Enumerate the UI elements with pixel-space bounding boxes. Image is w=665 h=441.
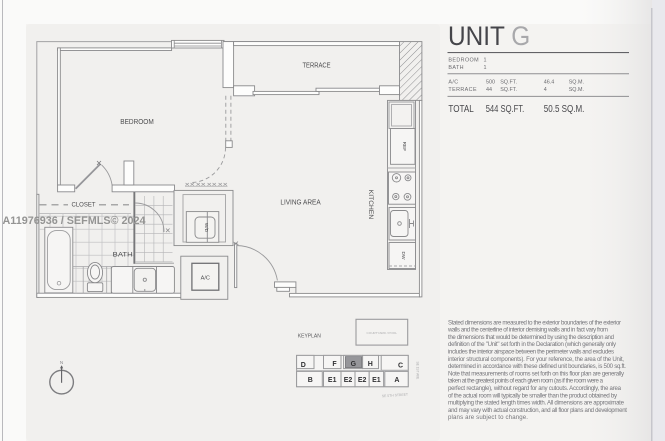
svg-text:Stated dimensions are measured: Stated dimensions are measured to the ex… — [448, 319, 621, 326]
svg-text:of the actual room will typica: of the actual room will typically be sma… — [448, 392, 618, 399]
svg-text:plans are subject to change.: plans are subject to change. — [448, 414, 528, 421]
svg-text:LIVING AREA: LIVING AREA — [280, 200, 321, 207]
svg-text:E1: E1 — [328, 377, 337, 384]
svg-text:KEYPLAN: KEYPLAN — [298, 334, 321, 340]
svg-text:A/C: A/C — [201, 276, 210, 282]
svg-text:BEDROOM: BEDROOM — [448, 57, 479, 63]
svg-text:SQ.FT.: SQ.FT. — [500, 87, 517, 93]
svg-text:TOTAL: TOTAL — [448, 104, 474, 115]
svg-text:50.5 SQ.M.: 50.5 SQ.M. — [544, 104, 585, 115]
svg-text:BATH: BATH — [113, 252, 133, 259]
svg-text:BEDROOM: BEDROOM — [120, 119, 154, 126]
svg-text:H: H — [368, 361, 373, 368]
svg-text:G: G — [351, 361, 357, 368]
svg-text:1: 1 — [484, 65, 487, 71]
svg-text:multiplying the stated length: multiplying the stated length times widt… — [448, 400, 625, 407]
svg-text:interior structural components: interior structural components). For you… — [448, 356, 624, 363]
svg-text:N: N — [60, 360, 63, 365]
svg-text:A11976936 / SEFMLS© 2024: A11976936 / SEFMLS© 2024 — [3, 215, 147, 227]
svg-text:4: 4 — [544, 87, 547, 93]
svg-text:Note that measurements of room: Note that measurements of rooms set fort… — [448, 370, 625, 377]
svg-text:COURTYARD / POOL: COURTYARD / POOL — [367, 331, 398, 335]
svg-text:1: 1 — [484, 57, 487, 63]
svg-text:E1: E1 — [372, 377, 381, 384]
svg-text:the dimensions that would be d: the dimensions that would be determined … — [448, 334, 614, 341]
svg-text:A/C: A/C — [448, 80, 458, 86]
svg-text:500: 500 — [486, 80, 495, 86]
svg-text:and may vary with actual const: and may vary with actual construction, a… — [448, 407, 627, 414]
svg-text:DW: DW — [400, 252, 406, 260]
svg-text:taken at the greatest points o: taken at the greatest points of each giv… — [448, 378, 604, 385]
svg-text:UNIT G: UNIT G — [448, 22, 530, 51]
svg-text:W/D: W/D — [203, 223, 209, 233]
svg-text:D: D — [301, 362, 306, 369]
svg-text:BATH: BATH — [448, 65, 464, 71]
svg-text:SQ.M.: SQ.M. — [569, 87, 584, 93]
svg-text:determined in accordance with: determined in accordance with these defi… — [448, 363, 626, 370]
svg-text:TERRACE: TERRACE — [302, 63, 330, 70]
svg-text:B: B — [308, 377, 313, 384]
svg-text:E2: E2 — [358, 377, 367, 384]
svg-text:544 SQ.FT.: 544 SQ.FT. — [486, 104, 525, 115]
svg-text:REF: REF — [401, 142, 407, 152]
svg-text:definition of the "Unit" set f: definition of the "Unit" set forth in th… — [448, 341, 617, 348]
svg-text:walls and the centerline of in: walls and the centerline of interior dem… — [447, 327, 608, 334]
svg-text:F: F — [332, 361, 337, 368]
svg-text:A: A — [394, 377, 399, 384]
svg-text:perfect rectangle), without re: perfect rectangle), without regard for a… — [448, 385, 622, 392]
svg-text:TERRACE: TERRACE — [448, 87, 477, 93]
svg-text:SE 1ST AVE: SE 1ST AVE — [416, 362, 420, 380]
svg-text:SQ.FT.: SQ.FT. — [500, 80, 517, 86]
svg-text:includes the interior airspace: includes the interior airspace between t… — [448, 349, 614, 356]
svg-text:SQ.M.: SQ.M. — [569, 80, 584, 86]
svg-text:CLOSET: CLOSET — [72, 202, 96, 209]
svg-text:KITCHEN: KITCHEN — [367, 190, 374, 220]
svg-text:44: 44 — [486, 87, 492, 93]
svg-text:C: C — [398, 362, 403, 369]
svg-text:46.4: 46.4 — [544, 80, 555, 86]
svg-text:E2: E2 — [344, 377, 353, 384]
